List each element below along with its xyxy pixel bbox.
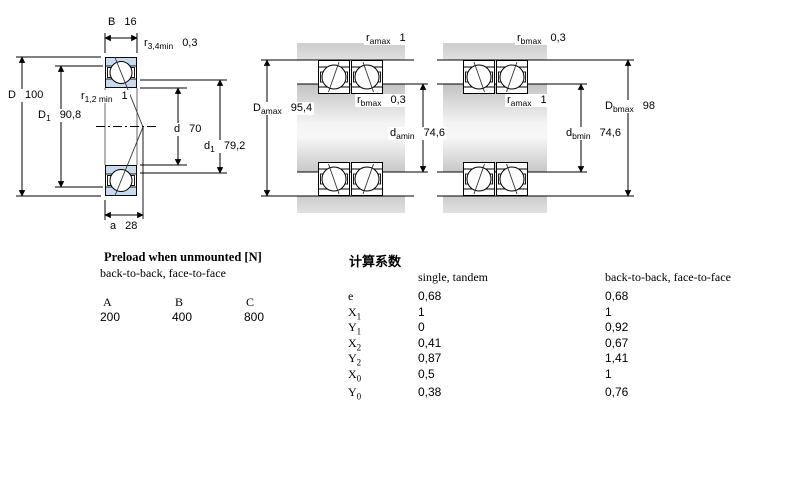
factors-col1-header: single, tandem <box>418 270 488 285</box>
factors-row-y1: Y100,92 <box>345 320 785 334</box>
dim-label-r34min: r3,4min0,3 <box>142 37 199 50</box>
bearing-datasheet-page: B16 r3,4min0,3 D100 r1,2 min1 D190,8 d70… <box>0 0 800 500</box>
dim-symbol: D <box>38 109 46 121</box>
dim-value: 74,6 <box>424 127 445 139</box>
dim-value: 74,6 <box>600 127 621 139</box>
dim-symbol: D <box>605 100 613 112</box>
factor-symbol: e <box>348 289 353 304</box>
dim-subscript: bmax <box>613 104 634 114</box>
dim-value: 70 <box>189 123 201 135</box>
dim-label-dbmin: dbmin74,6 <box>564 127 623 140</box>
factor-symbol: X0 <box>348 367 361 382</box>
dim-subscript: amax <box>261 106 282 116</box>
factors-col2-header: back-to-back, face-to-face <box>605 270 731 285</box>
dim-symbol: a <box>110 220 116 232</box>
dim-symbol: B <box>108 16 115 28</box>
dim-label-r12min: r1,2 min1 <box>79 90 130 103</box>
dim-value: 16 <box>124 16 136 28</box>
dim-label-damin: damin74,6 <box>388 127 447 140</box>
dim-subscript: 1 <box>210 144 215 154</box>
factor-value-single-tandem: 1 <box>418 305 425 319</box>
factors-table-title: 计算系数 <box>349 251 401 270</box>
dim-label-B: B16 <box>106 16 139 29</box>
dim-label-rbmax-2: rbmax0,3 <box>515 32 568 45</box>
dim-label-ramax: ramax1 <box>364 32 408 45</box>
dim-subscript: bmax <box>521 36 542 46</box>
factor-value-single-tandem: 0 <box>418 320 425 334</box>
factor-value-paired: 0,92 <box>605 320 628 334</box>
dim-subscript: bmax <box>361 98 382 108</box>
preload-value-b: 400 <box>172 310 192 324</box>
preload-table-subtitle: back-to-back, face-to-face <box>100 266 226 281</box>
dim-value: 90,8 <box>60 109 81 121</box>
factors-row-e: e0,680,68 <box>345 289 785 303</box>
factor-value-single-tandem: 0,5 <box>418 367 435 381</box>
dim-subscript: amin <box>396 131 414 141</box>
factor-value-paired: 0,76 <box>605 385 628 399</box>
dim-symbol: D <box>8 89 16 101</box>
dim-value: 100 <box>25 89 43 101</box>
dim-label-rbmax: rbmax0,3 <box>355 94 408 107</box>
factor-value-single-tandem: 0,87 <box>418 351 441 365</box>
dim-value: 0,3 <box>182 37 197 49</box>
dim-value: 79,2 <box>224 140 245 152</box>
dim-value: 1 <box>540 94 546 106</box>
preload-col-header-b: B <box>175 295 183 310</box>
dim-subscript: 1,2 min <box>85 94 113 104</box>
dim-label-D1: D190,8 <box>36 109 83 122</box>
preload-col-header-a: A <box>103 295 112 310</box>
factor-symbol: X1 <box>348 305 361 320</box>
dim-value: 98 <box>643 100 655 112</box>
dim-subscript: 1 <box>46 113 51 123</box>
factor-symbol: Y2 <box>348 351 361 366</box>
dim-value: 1 <box>122 90 128 102</box>
dim-value: 0,3 <box>550 32 565 44</box>
factors-row-x2: X20,410,67 <box>345 336 785 350</box>
dim-subscript: bmin <box>572 131 590 141</box>
factor-value-single-tandem: 0,38 <box>418 385 441 399</box>
factor-symbol: Y1 <box>348 320 361 335</box>
preload-value-a: 200 <box>100 310 120 324</box>
factor-value-paired: 1,41 <box>605 351 628 365</box>
factor-value-single-tandem: 0,68 <box>418 289 441 303</box>
dim-label-Damax: Damax95,4 <box>251 102 314 115</box>
dim-value: 0,3 <box>390 94 405 106</box>
dim-symbol: d <box>174 123 180 135</box>
factors-row-y0: Y00,380,76 <box>345 385 785 399</box>
dim-value: 95,4 <box>291 102 312 114</box>
dim-subscript: 3,4min <box>148 41 174 51</box>
dim-value: 1 <box>399 32 405 44</box>
factor-value-paired: 1 <box>605 305 612 319</box>
factors-row-y2: Y20,871,41 <box>345 351 785 365</box>
dim-label-D: D100 <box>6 89 45 102</box>
factor-value-paired: 1 <box>605 367 612 381</box>
factors-row-x0: X00,51 <box>345 367 785 381</box>
dim-value: 28 <box>125 220 137 232</box>
preload-table-title: Preload when unmounted [N] <box>104 250 262 265</box>
factor-symbol: Y0 <box>348 385 361 400</box>
dim-subscript: amax <box>511 98 532 108</box>
factor-symbol: X2 <box>348 336 361 351</box>
preload-value-c: 800 <box>244 310 264 324</box>
factors-row-x1: X111 <box>345 305 785 319</box>
dim-symbol: D <box>253 102 261 114</box>
factor-value-paired: 0,68 <box>605 289 628 303</box>
preload-col-header-c: C <box>246 295 254 310</box>
dim-label-a: a28 <box>108 220 139 233</box>
dim-subscript: amax <box>370 36 391 46</box>
single-bearing-cross-section <box>96 57 156 219</box>
dim-label-d: d70 <box>172 123 203 136</box>
dim-label-Dbmax: Dbmax98 <box>603 100 657 113</box>
dim-label-d1: d179,2 <box>202 140 247 153</box>
factor-value-single-tandem: 0,41 <box>418 336 441 350</box>
dim-label-ramax-2: ramax1 <box>505 94 549 107</box>
factor-value-paired: 0,67 <box>605 336 628 350</box>
